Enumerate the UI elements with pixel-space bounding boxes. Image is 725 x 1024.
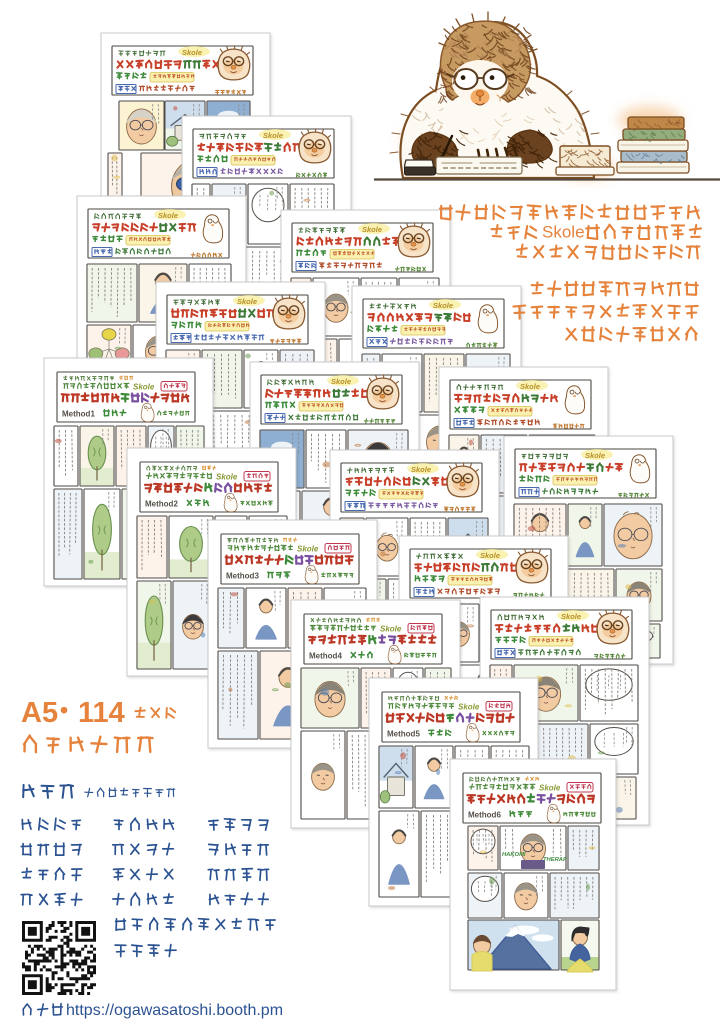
svg-text:Skole: Skole	[297, 545, 319, 554]
svg-text:Skole: Skole	[520, 382, 540, 391]
svg-text:Skole: Skole	[539, 784, 561, 793]
svg-text:Skole: Skole	[480, 551, 500, 560]
svg-text:Skole: Skole	[237, 297, 257, 306]
svg-text:Skole: Skole	[585, 451, 605, 460]
svg-text:Method4: Method4	[309, 652, 342, 661]
svg-text:Method5: Method5	[387, 730, 420, 739]
svg-text:Skole: Skole	[561, 612, 581, 621]
svg-text:Skole: Skole	[362, 225, 382, 234]
svg-text:Method3: Method3	[226, 572, 259, 581]
svg-text:A5: A5	[21, 697, 58, 729]
svg-text:•: •	[60, 697, 68, 723]
svg-text:Method6: Method6	[468, 811, 501, 820]
svg-text:114: 114	[78, 697, 125, 729]
svg-text:HAKOMI: HAKOMI	[502, 852, 526, 858]
svg-text:Skole: Skole	[411, 465, 431, 474]
svg-text:https://ogawasatoshi.booth.pm: https://ogawasatoshi.booth.pm	[66, 1002, 283, 1019]
svg-text:Skole: Skole	[331, 377, 351, 386]
svg-text:Skole: Skole	[158, 211, 178, 220]
svg-text:Skole: Skole	[458, 703, 480, 712]
svg-text:Skole: Skole	[263, 131, 283, 140]
svg-text:Skole: Skole	[133, 383, 155, 392]
svg-text:Skole: Skole	[542, 223, 585, 242]
svg-text:Skole: Skole	[182, 48, 202, 57]
svg-text:Skole: Skole	[433, 301, 453, 310]
svg-text:Skole: Skole	[380, 625, 402, 634]
svg-text:Skole: Skole	[216, 473, 238, 482]
svg-text:Method2: Method2	[145, 500, 178, 509]
svg-text:Method1: Method1	[62, 410, 95, 419]
